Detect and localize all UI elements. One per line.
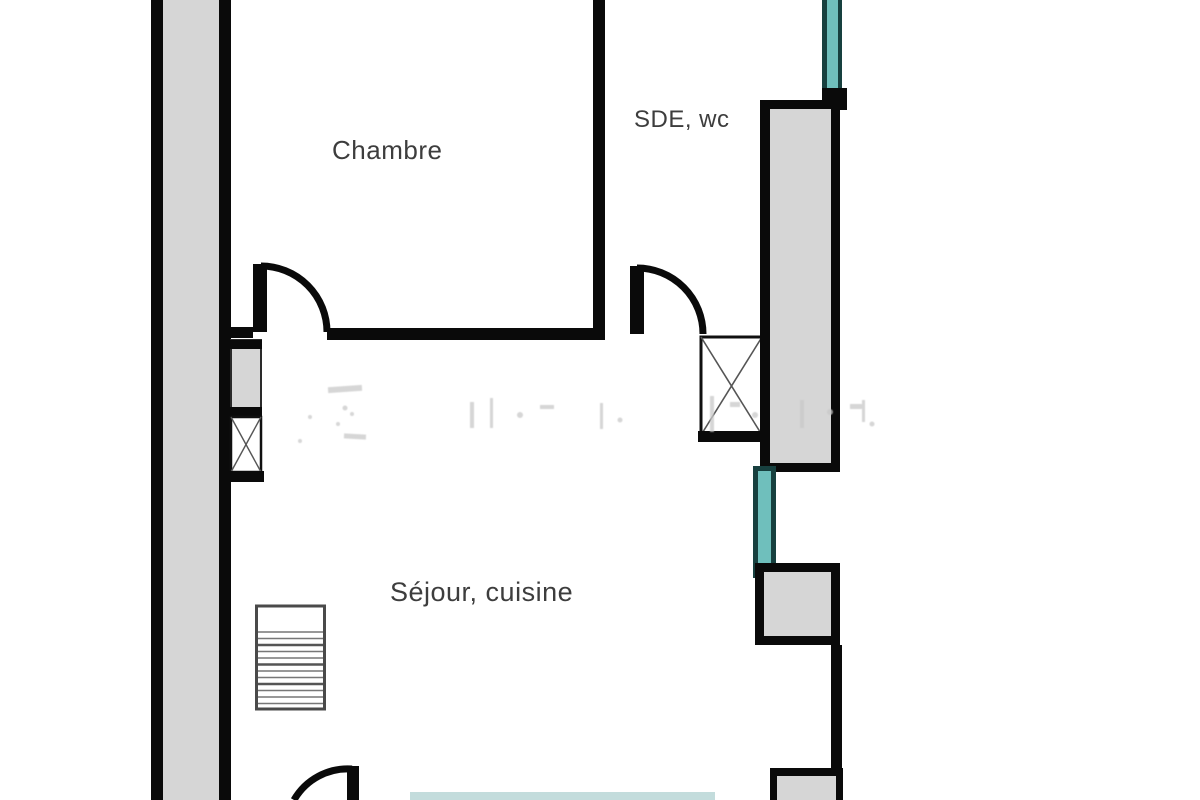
chambre-sde-wall (593, 0, 605, 340)
chambre-bottom-wall (327, 328, 605, 340)
interior-walls (219, 0, 605, 340)
room-label-chambre: Chambre (332, 135, 442, 165)
right-lower-pier-fill (764, 572, 831, 636)
sejour-door-leaf (347, 766, 359, 800)
chambre-door (253, 264, 327, 332)
right-wall-bottom-pier (770, 768, 843, 800)
chambre-door-arc (261, 266, 327, 332)
left-wall (151, 0, 231, 800)
left-wall-inner-edge (219, 0, 231, 800)
chambre-wall-stub (219, 327, 253, 338)
window-bottom (410, 792, 715, 800)
chambre-door-leaf (253, 264, 267, 332)
duct-box-left-sill (228, 471, 264, 482)
sejour-door (294, 766, 359, 800)
right-wall-lower-pier (755, 563, 840, 645)
sde-door-leaf (630, 266, 644, 334)
window-middle (753, 466, 776, 578)
left-stub-fill (231, 340, 261, 417)
right-wall-line (831, 645, 842, 772)
floorplan-drawing: Chambre SDE, wc Séjour, cuisine (0, 0, 1200, 800)
room-label-sejour: Séjour, cuisine (390, 577, 573, 607)
left-wall-stub-column (228, 340, 262, 417)
sde-door-arc (637, 268, 703, 334)
right-bottom-pier-fill (777, 776, 836, 800)
left-stub-bottom-bar (228, 407, 262, 417)
sejour-door-arc (294, 769, 352, 800)
sde-door (630, 266, 703, 334)
room-label-sde: SDE, wc (634, 106, 730, 133)
duct-box-left (228, 417, 264, 482)
left-stub-top-bar (228, 340, 262, 349)
left-wall-outer-edge (151, 0, 163, 800)
window-middle-glass (758, 471, 771, 573)
floorplan: Chambre SDE, wc Séjour, cuisine (0, 0, 1200, 800)
window-top-glass (827, 0, 838, 99)
stairs (257, 606, 325, 709)
